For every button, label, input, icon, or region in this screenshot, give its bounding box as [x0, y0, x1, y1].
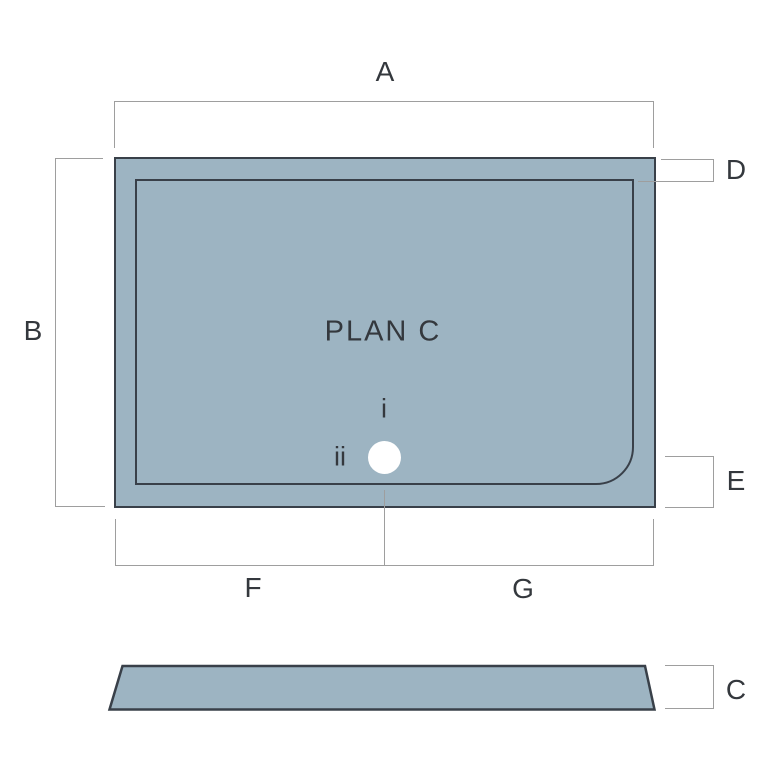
- tray-side-profile-shape: [110, 666, 655, 710]
- dim-label-g: G: [512, 575, 534, 603]
- tray-side-profile: [105, 662, 661, 714]
- waste-hole: [368, 441, 401, 474]
- dim-e-top-tick: [665, 456, 714, 457]
- dim-d-top-tick: [661, 159, 714, 160]
- dim-label-d: D: [726, 156, 746, 184]
- dim-label-b: B: [24, 317, 43, 345]
- shower-tray-dimension-diagram: A B PLAN C i ii D E F G: [0, 0, 768, 768]
- dim-fg-left-tick: [115, 519, 116, 565]
- waste-marker-i: i: [381, 396, 387, 423]
- dim-e-bottom-tick: [665, 507, 714, 508]
- dim-c-bottom-tick: [665, 708, 714, 709]
- dim-b-line: [55, 158, 56, 507]
- dim-a-right-tick: [653, 101, 654, 148]
- dim-b-top-tick: [55, 158, 103, 159]
- dim-b-bottom-tick: [55, 506, 105, 507]
- dim-a-left-tick: [114, 101, 115, 148]
- dim-d-bottom-tick: [638, 181, 714, 182]
- dim-label-e: E: [727, 467, 746, 495]
- dim-e-line: [713, 456, 714, 508]
- dim-a-line: [114, 101, 654, 102]
- dim-c-top-tick: [665, 665, 714, 666]
- dim-label-c: C: [726, 676, 746, 704]
- dim-label-a: A: [376, 58, 395, 86]
- dim-fg-right-tick: [653, 519, 654, 565]
- dim-label-f: F: [244, 574, 261, 602]
- dim-d-line: [713, 159, 714, 182]
- waste-centre-line: [384, 490, 385, 566]
- dim-c-line: [713, 665, 714, 709]
- plan-title: PLAN C: [325, 318, 442, 347]
- waste-marker-ii: ii: [334, 444, 346, 471]
